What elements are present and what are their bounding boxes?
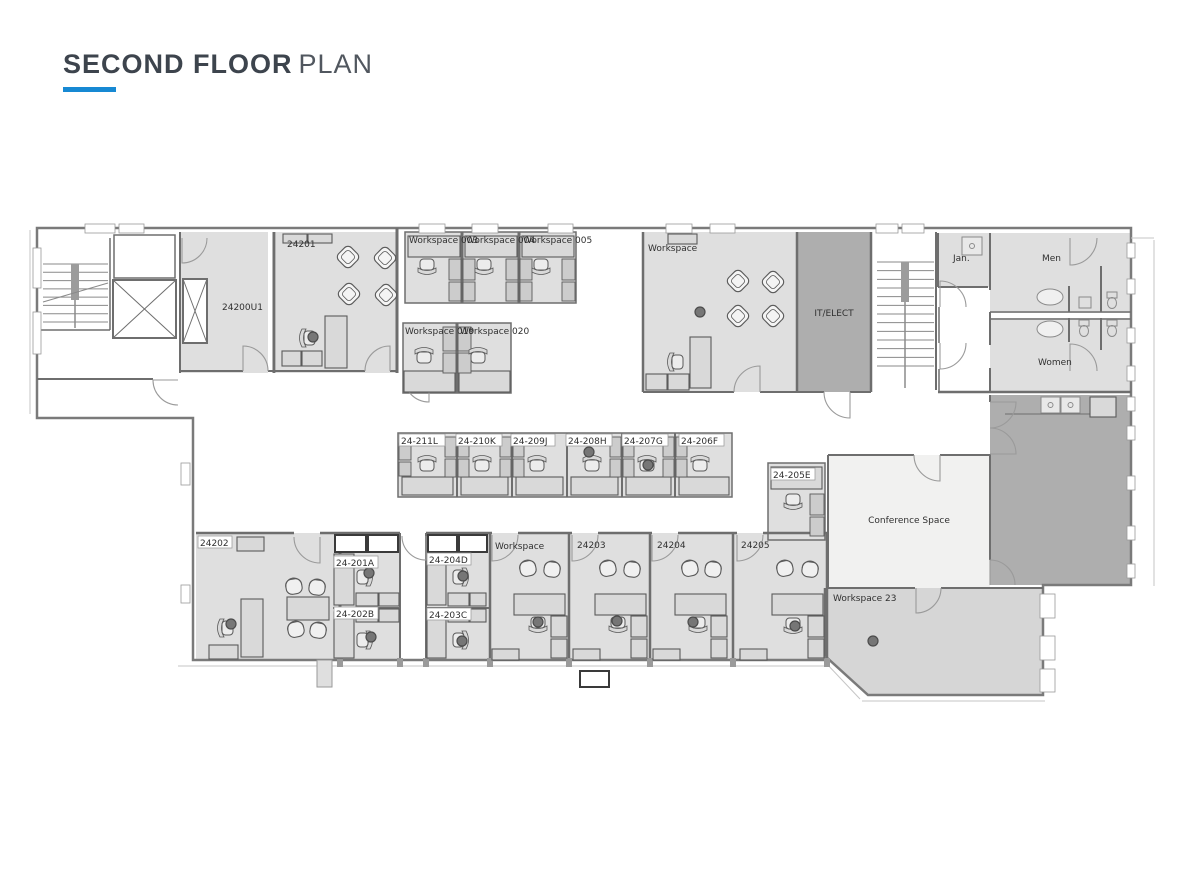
room-label: 24-208H [568, 437, 607, 447]
room-label: 24-204D [429, 556, 468, 566]
window [181, 463, 190, 485]
person-marker [458, 571, 468, 581]
office-chair [532, 259, 550, 275]
person-marker [366, 632, 376, 642]
stair-rail-bar [901, 262, 909, 302]
cabinet [513, 459, 524, 477]
person-marker [643, 460, 653, 470]
wall-stud [730, 658, 736, 667]
desk [571, 477, 618, 495]
cabinet [463, 282, 475, 301]
door-swing [402, 536, 426, 560]
cabinet [445, 437, 456, 457]
wall-stud [423, 658, 429, 667]
room-label: Men [1042, 254, 1061, 264]
desk [668, 374, 689, 390]
person-marker [226, 619, 236, 629]
title-underline [63, 87, 116, 92]
room-label: 24-206F [681, 437, 718, 447]
desk [379, 609, 399, 622]
cabinet [445, 459, 456, 477]
room-label: 24-205E [773, 471, 811, 481]
window [548, 224, 573, 233]
window [1127, 366, 1135, 381]
window [902, 224, 924, 233]
room-label: 24-207G [624, 437, 663, 447]
cabinet [506, 282, 518, 301]
window [1127, 328, 1135, 343]
office-chair [469, 348, 487, 364]
wall-stud [824, 658, 830, 667]
cabinet [449, 259, 461, 280]
desk [653, 649, 680, 660]
window [33, 312, 41, 354]
desk [516, 477, 563, 495]
desk [646, 374, 667, 390]
window [1040, 669, 1055, 692]
cabinet [520, 259, 532, 280]
cabinet [562, 282, 575, 301]
cabinet [663, 459, 674, 477]
person-marker [868, 636, 878, 646]
floor-plan: 24200U124201Workspace 003Workspace 004Wo… [0, 0, 1199, 883]
chair-seat [417, 352, 431, 363]
desk [808, 639, 824, 658]
room-label: 24-201A [336, 559, 375, 569]
person-marker [612, 616, 622, 626]
room-label: 24-209J [513, 437, 548, 447]
room-label: 24-202B [336, 610, 374, 620]
room-label: 24201 [287, 240, 316, 250]
closet [459, 535, 487, 552]
desk [711, 616, 727, 637]
room-label: 24-211L [401, 437, 438, 447]
chair-seat [471, 352, 485, 363]
closet [580, 671, 609, 687]
office-chair [418, 259, 436, 275]
chair-seat [477, 259, 491, 270]
window [710, 224, 735, 233]
window [472, 224, 498, 233]
cabinet [399, 462, 411, 476]
office-chair [415, 348, 433, 364]
desk [668, 234, 697, 244]
desk [551, 616, 567, 637]
page-header: SECOND FLOORPLAN [63, 50, 373, 92]
window [1127, 279, 1135, 294]
window [666, 224, 692, 233]
desk [241, 599, 263, 657]
cabinet [506, 259, 518, 280]
chair-seat [530, 460, 544, 471]
desk [595, 594, 646, 615]
room-workspace-23 [825, 588, 1043, 695]
room-label: 24200U1 [222, 303, 263, 313]
window [1127, 397, 1135, 411]
closet [335, 535, 366, 552]
room-label: Workspace [495, 542, 545, 552]
person-marker [457, 636, 467, 646]
title-primary: SECOND FLOOR [63, 49, 293, 79]
office-chair [583, 456, 601, 472]
desk [675, 594, 726, 615]
desk [514, 594, 565, 615]
title-secondary: PLAN [299, 49, 374, 79]
cabinet [610, 459, 621, 477]
desk [631, 616, 647, 637]
floor-plan-page: SECOND FLOORPLAN 24200U124201Workspace 0… [0, 0, 1199, 883]
desk [573, 649, 600, 660]
partition-border [114, 235, 175, 278]
chair-seat [534, 259, 548, 270]
person-marker [688, 617, 698, 627]
desk [459, 371, 510, 392]
office-chair [691, 456, 709, 472]
closet [428, 535, 457, 552]
desk [740, 649, 767, 660]
cabinet [810, 517, 824, 536]
room-label: IT/ELECT [814, 309, 854, 319]
person-marker [790, 621, 800, 631]
desk [470, 609, 486, 622]
wall-stud [397, 658, 403, 667]
desk [470, 593, 486, 606]
desk [379, 593, 399, 606]
desk [402, 477, 453, 495]
door-swing [940, 343, 966, 369]
room-label: Workspace 020 [460, 327, 530, 337]
office-chair [528, 456, 546, 472]
sink-basin [1041, 397, 1060, 413]
room-label: Workspace 23 [833, 594, 897, 604]
window [85, 224, 115, 233]
room-kitchen [990, 395, 1131, 585]
window [419, 224, 445, 233]
room-label: Workspace [648, 244, 698, 254]
desk [808, 616, 824, 637]
window [1127, 243, 1135, 258]
person-marker [695, 307, 705, 317]
wall-stud [566, 658, 572, 667]
room-label: 24203 [577, 541, 606, 551]
sink [1037, 321, 1063, 337]
desk [404, 371, 455, 392]
desk [461, 477, 508, 495]
chair-seat [475, 460, 489, 471]
window [1040, 594, 1055, 618]
desk [287, 597, 329, 620]
window [181, 585, 190, 603]
chair-seat [420, 460, 434, 471]
cabinet [458, 353, 471, 373]
window [1040, 636, 1055, 660]
door-swing [824, 392, 850, 418]
room-label: 24-210K [458, 437, 497, 447]
office-chair [475, 259, 493, 275]
closet [368, 535, 398, 552]
desk [551, 639, 567, 658]
person-marker [364, 568, 374, 578]
room-label: 24202 [200, 539, 229, 549]
person-marker [584, 447, 594, 457]
window [33, 248, 41, 288]
desk [679, 477, 729, 495]
person-marker [308, 332, 318, 342]
cabinet [676, 459, 687, 477]
desk [711, 639, 727, 658]
desk [282, 351, 301, 366]
cabinet [623, 459, 634, 477]
desk [1090, 397, 1116, 417]
cabinet [500, 459, 511, 477]
chair-seat [786, 494, 800, 505]
room-label: 24204 [657, 541, 686, 551]
person-marker [533, 617, 543, 627]
cabinet [458, 459, 469, 477]
office-chair [784, 494, 802, 510]
chair-seat [672, 355, 683, 369]
door-swing [153, 380, 178, 405]
window [1127, 476, 1135, 490]
desk [209, 645, 238, 659]
window [119, 224, 144, 233]
room-label: Jan. [952, 254, 970, 264]
cabinet [463, 259, 475, 280]
room-label: Women [1038, 358, 1072, 368]
desk [302, 351, 322, 366]
sink-basin [1061, 397, 1080, 413]
cabinet [449, 282, 461, 301]
pilaster [317, 660, 332, 687]
chair-seat [585, 460, 599, 471]
room-label: Conference Space [868, 516, 950, 526]
wall-stud [647, 658, 653, 667]
sink-basin [962, 237, 982, 255]
office-chair [668, 353, 684, 371]
cabinet [443, 353, 456, 373]
desk [356, 593, 378, 606]
office-chair [473, 456, 491, 472]
room-label: 24-203C [429, 611, 467, 621]
desk [492, 649, 519, 660]
chair-seat [693, 460, 707, 471]
cabinet [562, 259, 575, 280]
room-label: Workspace 005 [523, 236, 592, 246]
desk [237, 537, 264, 551]
desk [772, 594, 823, 615]
desk [626, 477, 671, 495]
desk [690, 337, 711, 388]
cabinet [520, 282, 532, 301]
room-label: 24205 [741, 541, 770, 551]
cabinet [810, 494, 824, 515]
stair-rail-bar [71, 264, 79, 300]
desk [448, 593, 469, 606]
page-title: SECOND FLOORPLAN [63, 50, 373, 80]
window [1127, 564, 1135, 578]
window [1127, 526, 1135, 540]
window [876, 224, 898, 233]
chair-seat [420, 259, 434, 270]
wall-stud [337, 658, 343, 667]
desk [325, 316, 347, 368]
desk [631, 639, 647, 658]
office-chair [418, 456, 436, 472]
sink [1037, 289, 1063, 305]
window [1127, 426, 1135, 440]
